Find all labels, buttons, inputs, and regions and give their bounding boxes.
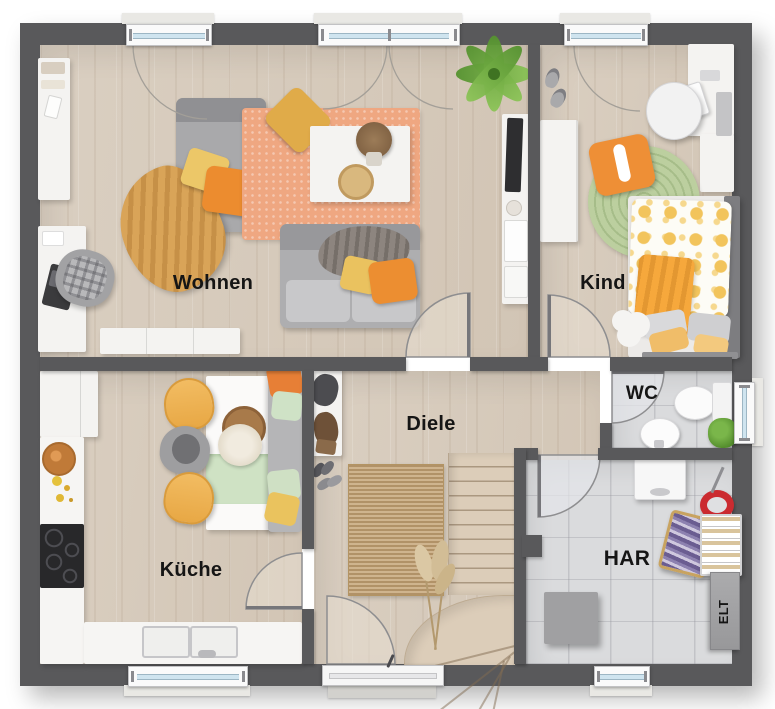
window-kind [564, 24, 648, 46]
window-glass [137, 674, 239, 680]
room-label-elt: ELT [704, 592, 744, 632]
window-frame-tick [642, 29, 645, 40]
entrance-step [328, 686, 436, 698]
wall-kind-south [610, 357, 732, 371]
room-label-wc: WC [612, 383, 672, 405]
floor-plan: Wohnen Kind Küche Diele WC HAR ELT [0, 0, 775, 709]
window-arc [133, 45, 207, 119]
wall-wohnen-kind [528, 45, 540, 357]
window-frame-tick [597, 671, 600, 682]
window-frame-tick [567, 29, 570, 40]
window-frame-tick [129, 29, 132, 40]
window-wc [734, 382, 755, 444]
wall-kueche-east-lower [302, 609, 314, 664]
room-label-har: HAR [587, 547, 667, 571]
wohnen-door-fan [406, 293, 470, 357]
window-mullion [388, 29, 391, 42]
window-sill [122, 13, 214, 24]
window-arc [323, 45, 387, 109]
window-glass [571, 33, 642, 39]
window-sill [314, 13, 462, 24]
window-har [594, 666, 650, 687]
window-arc [389, 45, 453, 109]
window-glass [133, 33, 205, 39]
wall-wc-west [600, 423, 612, 448]
wall-har-pillar [522, 535, 542, 557]
window-wohnen-2 [318, 24, 460, 46]
window-kueche [128, 666, 248, 687]
kind-door-fan [548, 295, 610, 357]
wall-har-north-stub [526, 448, 538, 460]
wall-kueche-east-upper [302, 371, 314, 549]
wall-wohnen-south [40, 357, 406, 371]
door-swing-layer [0, 0, 775, 709]
entrance-door-fan [327, 596, 395, 664]
window-sill [560, 13, 650, 24]
window-frame-tick [321, 29, 324, 40]
window-frame-tick [206, 29, 209, 40]
window-frame-tick [739, 385, 750, 388]
room-label-kind: Kind [563, 272, 643, 295]
wall-har-north [598, 448, 732, 460]
har-door-fan [538, 455, 600, 517]
window-frame-tick [644, 671, 647, 682]
kueche-door-fan [246, 553, 302, 609]
room-label-wohnen: Wohnen [153, 272, 273, 295]
window-glass [599, 674, 645, 680]
window-frame-tick [739, 438, 750, 441]
window-arc [574, 45, 640, 111]
entrance-door-slab [329, 673, 437, 680]
wall-wohnen-south [470, 357, 548, 371]
window-glass [742, 387, 747, 439]
window-frame-tick [454, 29, 457, 40]
window-frame-tick [131, 671, 134, 682]
window-arcs [133, 45, 640, 119]
entrance-door [322, 665, 444, 686]
window-frame-tick [242, 671, 245, 682]
window-wohnen-1 [126, 24, 212, 46]
room-label-kueche: Küche [141, 559, 241, 582]
room-label-diele: Diele [391, 413, 471, 436]
